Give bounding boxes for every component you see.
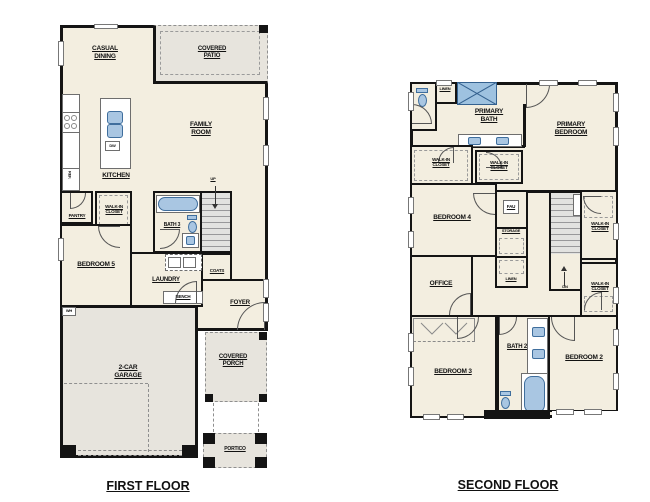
label-walk-in-closet-right-upper: WALK-IN CLOSET [585, 221, 615, 232]
label-bath-2: BATH 2 [499, 344, 535, 351]
label-linen-upper: LINEN [433, 87, 457, 92]
sink [532, 327, 545, 337]
sink [468, 137, 481, 145]
burner-icon [64, 123, 70, 129]
garage-corner-post [60, 445, 76, 458]
garage-door-line [78, 455, 182, 456]
label-covered-porch: COVERED PORCH [211, 354, 255, 368]
stair-arrow-line [215, 186, 216, 206]
window [263, 97, 269, 120]
portico-corner-post [203, 457, 215, 468]
bathtub-water [158, 197, 198, 211]
patio-corner-post [259, 25, 268, 33]
walkway-edge [213, 403, 214, 432]
window [584, 409, 602, 415]
label-primary-bedroom: PRIMARY BEDROOM [546, 121, 596, 136]
label-bedroom-4: BEDROOM 4 [421, 214, 483, 222]
label-bedroom-3: BEDROOM 3 [422, 368, 484, 376]
label-dw: DW [105, 144, 120, 149]
label-fau: FAU [503, 204, 519, 209]
walkway-edge [258, 403, 259, 432]
window [58, 238, 64, 261]
label-walk-in-closet-right-lower: WALK-IN CLOSET [585, 281, 615, 292]
closet-shelving-outline [499, 260, 524, 274]
window [263, 303, 269, 322]
sink [186, 236, 195, 245]
sink [107, 124, 123, 138]
stair-arrow-head [561, 266, 567, 271]
label-foyer: FOYER [223, 300, 257, 307]
room-garage [60, 305, 198, 458]
porch-corner-post [259, 332, 267, 340]
window [578, 80, 597, 86]
shower [457, 82, 497, 105]
garage-dashed-line [148, 384, 149, 452]
dryer [183, 257, 196, 268]
toilet-tank [416, 88, 428, 93]
window [408, 231, 414, 248]
portico-corner-post [203, 433, 215, 444]
washer [168, 257, 181, 268]
burner-icon [64, 115, 70, 121]
window [447, 414, 464, 420]
toilet-tank [187, 215, 197, 220]
window [408, 367, 414, 386]
wall [484, 410, 550, 419]
label-bedroom-2: BEDROOM 2 [553, 354, 615, 362]
porch-corner-post [259, 394, 267, 402]
stairs-up [200, 191, 232, 253]
portico-corner-post [255, 433, 267, 444]
portico-corner-post [255, 457, 267, 468]
label-garage: 2-CAR GARAGE [105, 364, 151, 379]
label-covered-patio: COVERED PATIO [189, 46, 235, 60]
burner-icon [71, 123, 77, 129]
burner-icon [71, 115, 77, 121]
label-pantry: PANTRY [60, 213, 94, 218]
sink [107, 111, 123, 124]
window [94, 24, 118, 29]
label-walk-in-closet: WALK-IN CLOSET [99, 204, 129, 215]
window [556, 409, 574, 415]
window [408, 333, 414, 352]
stair-arrow-head [212, 204, 218, 209]
garage-door-line [78, 450, 182, 451]
label-walk-in-closet-left: WALK-IN CLOSET [426, 157, 456, 168]
window [263, 279, 269, 298]
label-portico: PORTICO [215, 447, 255, 453]
porch-corner-post [205, 394, 213, 402]
label-family-room: FAMILY ROOM [181, 121, 221, 136]
label-bath-3: BATH 3 [157, 223, 187, 229]
toilet-tank [500, 391, 511, 396]
window [613, 329, 619, 346]
label-primary-bath: PRIMARY BATH [469, 108, 509, 123]
window [613, 93, 619, 112]
garage-dashed-line [64, 383, 148, 384]
window [423, 414, 440, 420]
label-linen-mid: LINEN [499, 277, 523, 282]
toilet-bowl [501, 397, 510, 409]
label-storage: STORAGE [496, 229, 526, 234]
label-wh: WH [62, 309, 76, 314]
window [613, 373, 619, 390]
room-coats [200, 253, 232, 281]
label-bedroom-5: BEDROOM 5 [66, 261, 126, 269]
label-laundry: LAUNDRY [144, 277, 188, 284]
window [408, 197, 414, 214]
sink [496, 137, 509, 145]
window [58, 41, 64, 66]
wall [523, 104, 526, 147]
label-ref: REF. [67, 171, 72, 179]
label-walk-in-closet-center: WALK-IN CLOSET [484, 160, 514, 171]
closet-shelving-outline [499, 238, 524, 254]
second-floor-title: SECOND FLOOR [433, 478, 583, 492]
label-office: OFFICE [421, 280, 461, 288]
first-floor-title: FIRST FLOOR [83, 479, 213, 493]
label-up: UP [206, 177, 220, 182]
window [613, 127, 619, 146]
window [539, 80, 558, 86]
label-dn: DN [558, 285, 572, 290]
label-casual-dining: CASUAL DINING [83, 45, 127, 60]
window [408, 92, 414, 111]
label-kitchen: KITCHEN [91, 172, 141, 180]
window [263, 145, 269, 166]
garage-corner-post [182, 445, 198, 458]
label-coats: COATS [203, 268, 231, 273]
bathtub-water [524, 376, 545, 413]
toilet-bowl [188, 221, 197, 233]
floor-plan-page: REF. DW UP BENCH WH [0, 0, 650, 502]
